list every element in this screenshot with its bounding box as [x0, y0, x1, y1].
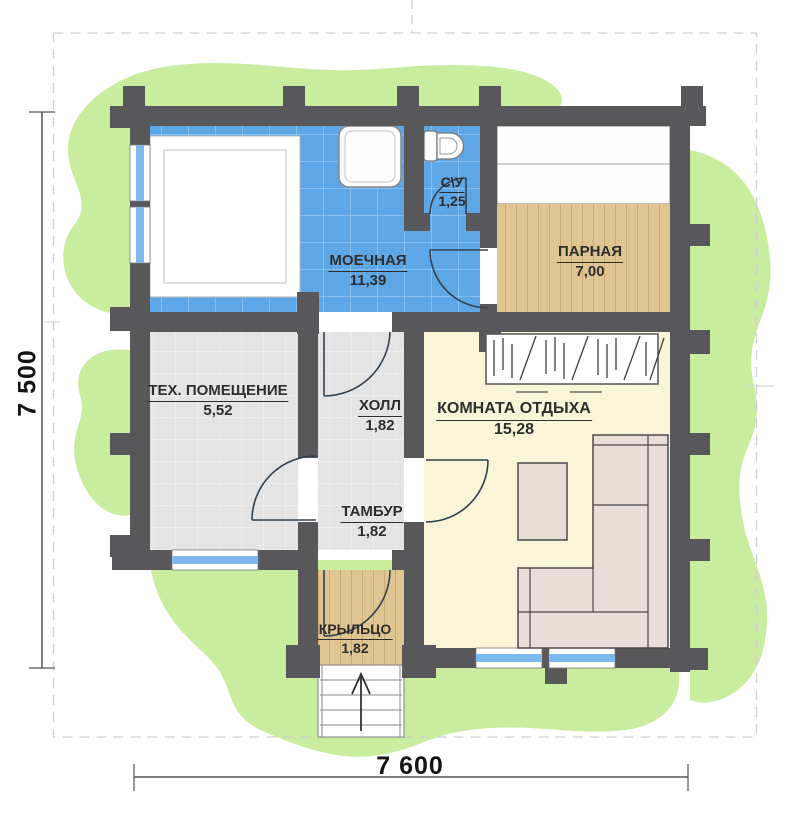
floor-plan: МОЕЧНАЯ 11,39 С\У 1,25 ПАРНАЯ 7,00 ТЕХ. …: [0, 0, 800, 813]
window: [476, 648, 542, 668]
steam-bench: [497, 126, 670, 204]
room-area: 1,25: [438, 193, 465, 210]
room-floor-tech: [150, 332, 298, 550]
room-label-washing: МОЕЧНАЯ 11,39: [328, 252, 407, 289]
room-name: ПАРНАЯ: [557, 243, 623, 263]
room-area: 11,39: [350, 272, 387, 290]
room-label-porch: КРЫЛЬЦО 1,82: [318, 621, 393, 656]
room-area: 15,28: [494, 421, 534, 440]
room-name: КРЫЛЬЦО: [318, 621, 393, 640]
room-label-hall: ХОЛЛ 1,82: [358, 397, 402, 434]
hatched-bench: [486, 334, 664, 392]
window: [549, 648, 615, 668]
pool: [150, 136, 300, 297]
room-label-tambour: ТАМБУР 1,82: [340, 503, 403, 540]
shower-tray: [339, 126, 401, 187]
room-name: ТАМБУР: [340, 503, 403, 523]
room-area: 1,82: [341, 640, 368, 657]
window: [130, 207, 150, 263]
room-name: КОМНАТА ОТДЫХА: [436, 400, 592, 421]
room-label-tech: ТЕХ. ПОМЕЩЕНИЕ 5,52: [147, 382, 288, 419]
window: [172, 550, 258, 570]
room-area: 1,82: [357, 523, 386, 541]
room-area: 1,82: [365, 417, 394, 435]
dimension-width: 7 600: [376, 752, 444, 781]
room-name: МОЕЧНАЯ: [328, 252, 407, 272]
room-area: 7,00: [575, 263, 604, 281]
toilet: [424, 131, 463, 161]
room-name: ТЕХ. ПОМЕЩЕНИЕ: [147, 382, 288, 402]
dimension-height: 7 500: [14, 349, 43, 417]
room-name: С\У: [440, 174, 465, 193]
room-label-wc: С\У 1,25: [438, 174, 465, 209]
room-label-steam: ПАРНАЯ 7,00: [557, 243, 623, 280]
room-area: 5,52: [203, 402, 232, 420]
room-name: ХОЛЛ: [358, 397, 402, 417]
coffee-table: [518, 463, 567, 540]
window: [130, 145, 150, 201]
room-label-rest: КОМНАТА ОТДЫХА 15,28: [436, 400, 592, 440]
entrance-stairs: [318, 665, 404, 737]
